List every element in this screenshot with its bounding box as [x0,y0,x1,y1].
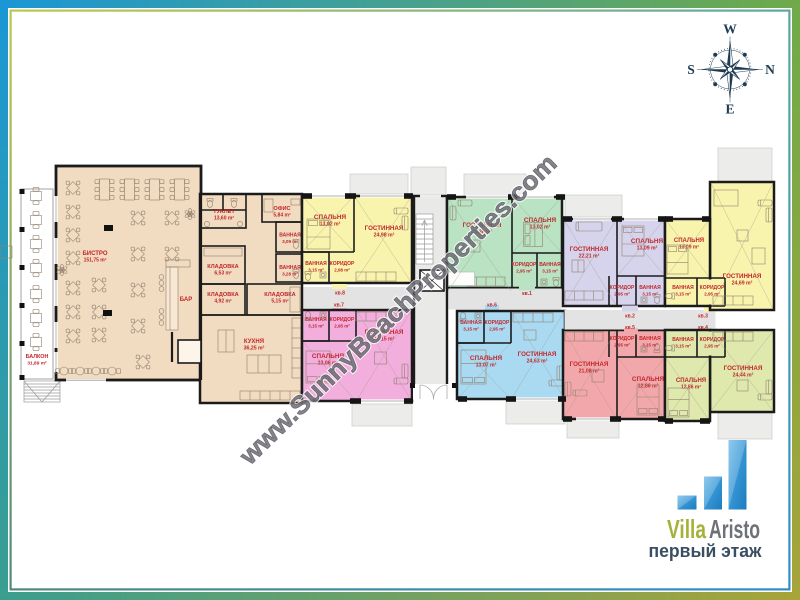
svg-text:СПАЛЬНЯ: СПАЛЬНЯ [524,217,557,224]
svg-text:ГОСТИННАЯ: ГОСТИННАЯ [570,246,609,253]
svg-text:3,15 m²: 3,15 m² [675,344,691,349]
svg-text:ВАННАЯ: ВАННАЯ [672,285,694,291]
svg-text:ГОСТИННАЯ: ГОСТИННАЯ [518,351,557,358]
svg-text:ВАННАЯ: ВАННАЯ [279,233,301,239]
svg-text:ОФИС: ОФИС [273,206,290,212]
svg-text:кв.7: кв.7 [334,303,344,309]
svg-text:6,53 m²: 6,53 m² [214,271,232,277]
svg-text:первый этаж: первый этаж [649,541,762,561]
svg-text:2,95 m²: 2,95 m² [334,324,350,329]
svg-text:5,15 m²: 5,15 m² [271,299,289,305]
svg-text:2,95 m²: 2,95 m² [614,292,630,297]
svg-text:4,92 m²: 4,92 m² [214,299,232,305]
svg-text:ГОСТИННАЯ: ГОСТИННАЯ [570,361,609,368]
svg-text:ВАННАЯ: ВАННАЯ [460,320,482,326]
svg-text:БАЛКОН: БАЛКОН [26,354,49,360]
svg-text:Aristo: Aristo [709,514,760,544]
svg-text:3,15 m²: 3,15 m² [308,324,324,329]
svg-text:кв.1: кв.1 [522,291,532,297]
svg-text:КОРИДОР: КОРИДОР [700,337,725,343]
svg-text:кв.8: кв.8 [335,291,345,297]
svg-text:КОРИДОР: КОРИДОР [610,336,635,342]
svg-text:ВАННАЯ: ВАННАЯ [639,285,661,291]
svg-text:БАР: БАР [180,297,192,303]
svg-text:ВАННАЯ: ВАННАЯ [639,336,661,342]
svg-text:Villa: Villa [667,514,706,544]
svg-text:36,25 m²: 36,25 m² [244,346,265,352]
svg-text:22,21 m²: 22,21 m² [579,254,600,260]
svg-text:24,44 m²: 24,44 m² [733,373,754,379]
svg-text:12,86 m²: 12,86 m² [681,385,701,391]
svg-text:3,15 m²: 3,15 m² [675,292,691,297]
svg-text:КОРИДОР: КОРИДОР [512,262,537,268]
svg-text:КЛАДОВКА: КЛАДОВКА [264,292,295,298]
svg-text:2,95 m²: 2,95 m² [704,344,720,349]
svg-text:N: N [765,62,775,77]
svg-text:ТУАЛЕТ: ТУАЛЕТ [213,209,235,215]
svg-text:ВАННАЯ: ВАННАЯ [672,337,694,343]
svg-text:2,95 m²: 2,95 m² [614,343,630,348]
svg-text:13,60 m²: 13,60 m² [214,216,234,222]
svg-text:кв.6: кв.6 [487,303,497,309]
svg-text:24,63 m²: 24,63 m² [527,359,548,365]
svg-text:151,75 m²: 151,75 m² [84,258,107,264]
svg-text:3,15 m²: 3,15 m² [642,343,658,348]
svg-text:СПАЛЬНЯ: СПАЛЬНЯ [632,376,665,383]
svg-text:КУХНЯ: КУХНЯ [244,339,264,345]
svg-text:ВАННАЯ: ВАННАЯ [305,261,327,267]
svg-text:ГОСТИННАЯ: ГОСТИННАЯ [365,225,404,232]
svg-text:13,09 m²: 13,09 m² [679,245,699,251]
svg-text:ВАННАЯ: ВАННАЯ [279,265,301,271]
svg-text:21,08 m²: 21,08 m² [579,369,600,375]
svg-text:ВАННАЯ: ВАННАЯ [539,262,561,268]
svg-text:24,69 m²: 24,69 m² [732,281,753,287]
svg-text:31,89 m²: 31,89 m² [27,361,47,367]
svg-text:2,95 m²: 2,95 m² [516,269,532,274]
svg-text:ГОСТИННАЯ: ГОСТИННАЯ [724,365,763,372]
svg-text:3,15 m²: 3,15 m² [542,269,558,274]
svg-text:КОРИДОР: КОРИДОР [330,317,355,323]
svg-text:S: S [687,62,695,77]
svg-text:кв.3: кв.3 [698,314,708,320]
svg-text:КОРИДОР: КОРИДОР [485,320,510,326]
svg-text:кв.5: кв.5 [625,325,635,331]
svg-text:E: E [725,102,734,117]
svg-text:СПАЛЬНЯ: СПАЛЬНЯ [674,238,704,244]
svg-text:2,95 m²: 2,95 m² [489,327,505,332]
svg-text:W: W [723,22,737,37]
svg-text:5,84 m²: 5,84 m² [273,213,291,219]
svg-text:КОРИДОР: КОРИДОР [610,285,635,291]
svg-text:КЛАДОВКА: КЛАДОВКА [207,292,238,298]
svg-text:3,15 m²: 3,15 m² [463,327,479,332]
svg-text:3,15 m²: 3,15 m² [642,292,658,297]
svg-text:КОРИДОР: КОРИДОР [330,261,355,267]
svg-text:2,98 m²: 2,98 m² [334,268,350,273]
svg-text:кв.2: кв.2 [625,314,635,320]
svg-text:БИСТРО: БИСТРО [82,251,107,257]
svg-text:КЛАДОВКА: КЛАДОВКА [207,264,238,270]
